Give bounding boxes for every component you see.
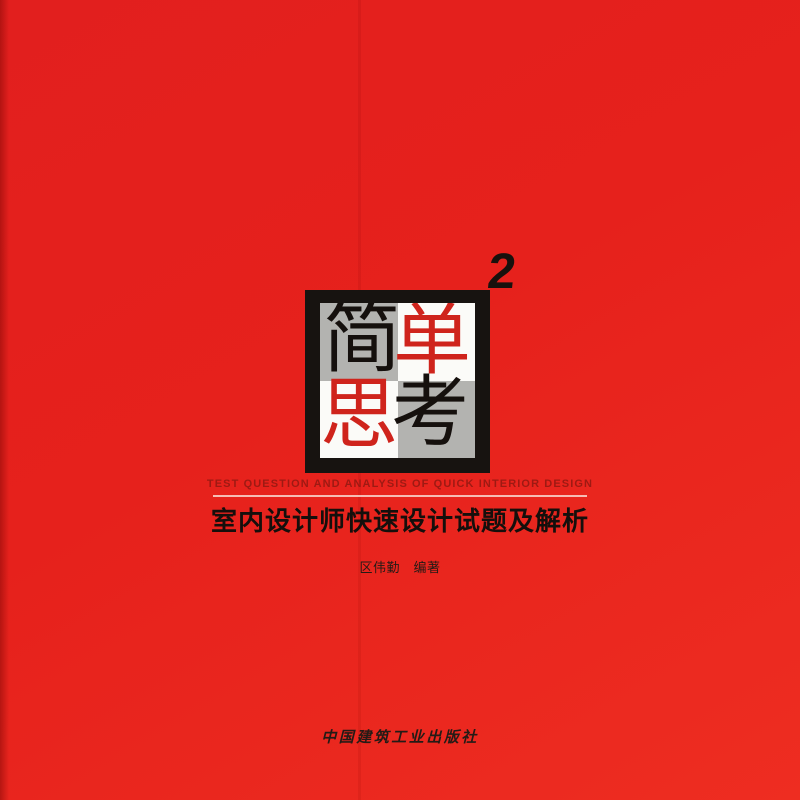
title-underline xyxy=(213,495,587,497)
cover-left-edge-shadow xyxy=(0,0,9,800)
author-line: 区伟勤 编著 xyxy=(0,557,800,576)
logo-char-kao: 考 xyxy=(391,374,469,452)
logo-grid: 简 单 思 考 xyxy=(320,303,475,458)
logo-char-si: 思 xyxy=(320,376,398,454)
book-title: 室内设计师快速设计试题及解析 xyxy=(0,501,800,538)
publisher-name: 中国建筑工业出版社 xyxy=(0,726,800,747)
logo-square: 简 单 思 考 xyxy=(305,290,490,473)
book-cover: 2 简 单 思 考 TEST QUESTION AND ANALYSIS OF … xyxy=(0,0,800,800)
subtitle-english: TEST QUESTION AND ANALYSIS OF QUICK INTE… xyxy=(0,478,800,490)
logo-char-jian: 简 xyxy=(323,303,401,378)
edition-superscript: 2 xyxy=(485,246,518,296)
